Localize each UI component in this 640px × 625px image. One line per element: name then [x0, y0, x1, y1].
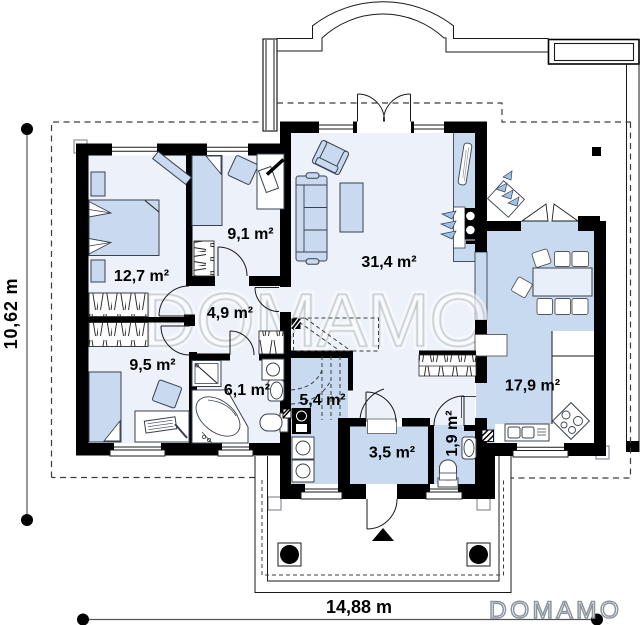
- svg-text:10,62 m: 10,62 m: [1, 278, 21, 350]
- svg-text:DOMAMO: DOMAMO: [489, 597, 622, 624]
- svg-text:6,1 m²: 6,1 m²: [224, 382, 270, 399]
- svg-text:14,88 m: 14,88 m: [326, 597, 392, 617]
- svg-text:31,4 m²: 31,4 m²: [361, 254, 416, 271]
- svg-text:9,1 m²: 9,1 m²: [227, 226, 273, 243]
- svg-text:3,5 m²: 3,5 m²: [369, 445, 415, 462]
- svg-text:5,4 m²: 5,4 m²: [299, 392, 345, 409]
- svg-text:4,9 m²: 4,9 m²: [207, 305, 253, 322]
- svg-text:17,9 m²: 17,9 m²: [505, 378, 560, 395]
- svg-text:12,7 m²: 12,7 m²: [114, 268, 169, 285]
- svg-text:9,5 m²: 9,5 m²: [129, 357, 175, 374]
- svg-text:1,9 m²: 1,9 m²: [444, 410, 461, 456]
